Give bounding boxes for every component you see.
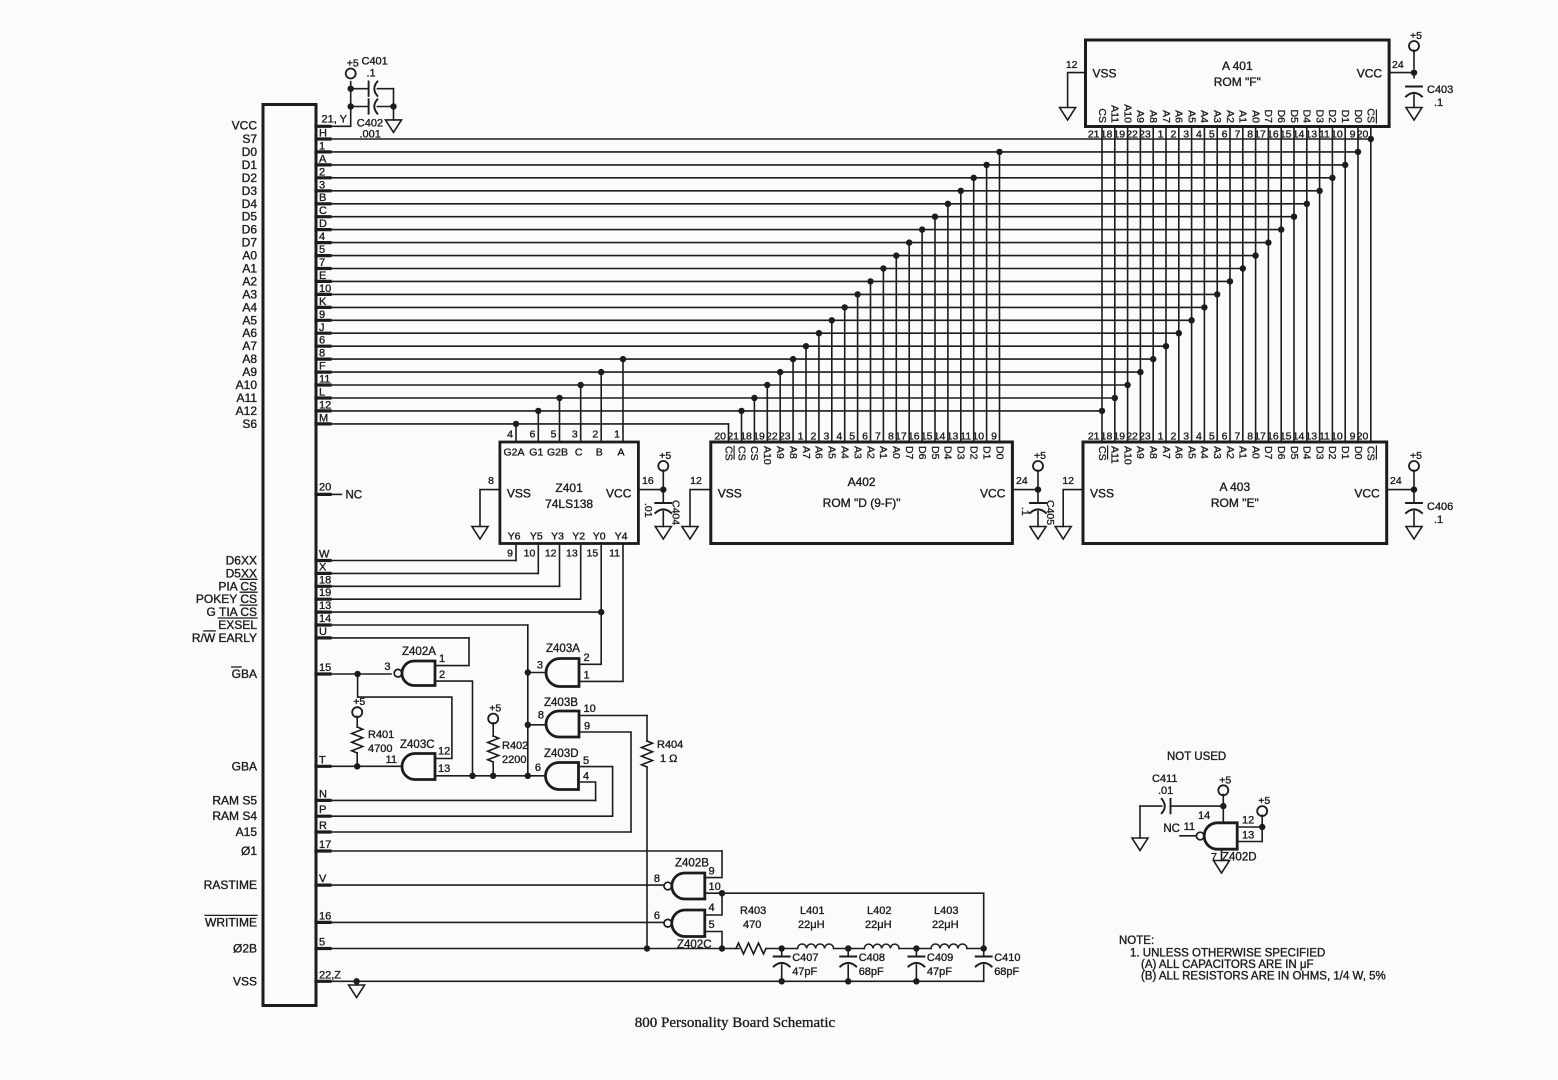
svg-text:A11: A11 [1109, 105, 1121, 123]
svg-text:D2: D2 [242, 171, 258, 185]
svg-text:A8: A8 [787, 446, 799, 459]
svg-text:2200: 2200 [502, 754, 526, 766]
svg-text:CS: CS [1365, 108, 1377, 123]
svg-text:+5: +5 [489, 703, 501, 715]
svg-text:Y3: Y3 [551, 531, 564, 543]
svg-text:D2: D2 [1326, 110, 1338, 124]
svg-text:R: R [319, 820, 327, 832]
svg-text:15: 15 [921, 431, 933, 443]
svg-text:19: 19 [1113, 431, 1125, 443]
svg-text:G2A: G2A [503, 447, 524, 459]
svg-text:68pF: 68pF [859, 966, 884, 978]
svg-text:A6: A6 [242, 326, 257, 340]
svg-text:5: 5 [1209, 129, 1215, 141]
svg-text:+5: +5 [353, 696, 365, 708]
svg-text:10: 10 [709, 881, 721, 893]
svg-text:ROM "F": ROM "F" [1214, 75, 1261, 89]
svg-text:D7: D7 [1262, 446, 1274, 460]
svg-text:A: A [617, 447, 624, 459]
svg-text:Z403B: Z403B [544, 697, 578, 709]
svg-text:A3: A3 [1211, 446, 1223, 459]
svg-text:A10: A10 [761, 446, 773, 465]
svg-text:12: 12 [1066, 59, 1078, 71]
svg-text:A8: A8 [242, 352, 257, 366]
svg-text:6: 6 [862, 431, 868, 443]
svg-text:A12: A12 [236, 404, 258, 418]
svg-text:A1: A1 [242, 262, 257, 276]
svg-text:3: 3 [572, 429, 578, 441]
svg-text:4700: 4700 [368, 743, 392, 755]
svg-text:20: 20 [1357, 431, 1369, 443]
svg-text:5: 5 [1209, 431, 1215, 443]
svg-text:D7: D7 [903, 446, 915, 460]
svg-text:19: 19 [1113, 129, 1125, 141]
svg-text:17: 17 [319, 839, 331, 851]
svg-text:4: 4 [507, 429, 513, 441]
svg-text:(A) ALL CAPACITORS ARE IN μF: (A) ALL CAPACITORS ARE IN μF [1141, 959, 1314, 971]
svg-text:A 403: A 403 [1219, 480, 1250, 494]
svg-text:9: 9 [1350, 431, 1356, 443]
svg-text:9: 9 [991, 431, 997, 443]
svg-text:5: 5 [319, 937, 325, 949]
svg-text:VCC: VCC [980, 487, 1006, 501]
svg-text:A3: A3 [1211, 110, 1223, 123]
svg-text:C409: C409 [927, 952, 953, 964]
svg-text:12: 12 [1242, 815, 1254, 827]
svg-text:A10: A10 [1121, 104, 1133, 123]
svg-text:NOTE:: NOTE: [1119, 935, 1154, 947]
svg-text:D3: D3 [955, 446, 967, 460]
svg-text:B: B [596, 447, 603, 459]
svg-text:12: 12 [690, 475, 702, 487]
svg-text:21: 21 [727, 431, 739, 443]
svg-text:13: 13 [1305, 431, 1317, 443]
svg-text:D0: D0 [993, 446, 1005, 460]
svg-text:GBA: GBA [232, 759, 257, 773]
svg-text:D1: D1 [242, 158, 258, 172]
svg-text:20: 20 [319, 482, 331, 494]
svg-text:22: 22 [1126, 129, 1138, 141]
svg-text:U: U [319, 626, 327, 638]
svg-text:6: 6 [529, 429, 535, 441]
svg-text:Ø1: Ø1 [241, 844, 257, 858]
svg-text:A11: A11 [1109, 446, 1121, 464]
svg-text:23: 23 [779, 431, 791, 443]
svg-text:Ø2B: Ø2B [233, 942, 257, 956]
svg-text:A2: A2 [242, 274, 257, 288]
svg-text:3: 3 [384, 661, 390, 673]
svg-text:PIA CS: PIA CS [218, 579, 257, 593]
svg-text:D4: D4 [242, 197, 258, 211]
svg-text:NOT USED: NOT USED [1167, 751, 1226, 763]
svg-text:19: 19 [319, 587, 331, 599]
svg-text:14: 14 [1293, 129, 1305, 141]
svg-text:A 401: A 401 [1222, 59, 1253, 73]
svg-text:47pF: 47pF [792, 966, 817, 978]
svg-text:24: 24 [1392, 59, 1404, 71]
svg-text:11: 11 [1319, 129, 1330, 141]
svg-text:VSS: VSS [1093, 67, 1117, 81]
svg-text:1: 1 [1158, 129, 1164, 141]
svg-text:7: 7 [1234, 129, 1240, 141]
svg-text:D3: D3 [1313, 446, 1325, 460]
svg-text:17: 17 [1254, 129, 1266, 141]
svg-text:A15: A15 [236, 825, 258, 839]
svg-text:A0: A0 [242, 249, 257, 263]
svg-text:N: N [319, 788, 327, 800]
svg-text:D0: D0 [242, 145, 258, 159]
svg-text:Y2: Y2 [572, 531, 585, 543]
svg-text:P: P [319, 804, 326, 816]
svg-text:Z402B: Z402B [675, 858, 709, 870]
svg-text:22μH: 22μH [932, 919, 959, 931]
svg-text:13: 13 [566, 548, 578, 560]
svg-text:T: T [319, 754, 326, 766]
svg-text:D5: D5 [929, 446, 941, 460]
svg-text:POKEY CS: POKEY CS [196, 592, 257, 606]
svg-text:C411: C411 [1152, 773, 1177, 785]
svg-text:A9: A9 [1134, 446, 1146, 459]
svg-text:A5: A5 [242, 313, 257, 327]
svg-text:15: 15 [1280, 129, 1292, 141]
svg-text:C410: C410 [994, 952, 1020, 964]
svg-text:L403: L403 [934, 905, 958, 917]
svg-text:R403: R403 [740, 905, 766, 917]
svg-text:C401: C401 [362, 56, 388, 68]
svg-text:23: 23 [1139, 431, 1151, 443]
svg-text:15: 15 [1280, 431, 1292, 443]
svg-text:8: 8 [488, 475, 494, 487]
svg-text:11: 11 [1184, 821, 1195, 833]
svg-text:22μH: 22μH [798, 919, 825, 931]
svg-text:A9: A9 [242, 365, 257, 379]
svg-text:CS: CS [735, 446, 747, 461]
svg-text:11: 11 [1319, 431, 1330, 443]
svg-text:CS: CS [722, 446, 734, 461]
svg-text:24: 24 [1390, 475, 1402, 487]
svg-text:A0: A0 [1249, 110, 1261, 123]
svg-text:17: 17 [895, 431, 907, 443]
svg-text:11: 11 [960, 431, 971, 443]
svg-text:10: 10 [1331, 431, 1343, 443]
svg-text:8: 8 [1247, 431, 1253, 443]
svg-text:9: 9 [1350, 129, 1356, 141]
svg-text:3: 3 [537, 660, 543, 672]
svg-text:S6: S6 [242, 417, 257, 431]
svg-text:16: 16 [642, 475, 654, 487]
svg-text:3: 3 [1183, 129, 1189, 141]
svg-text:21: 21 [1088, 129, 1100, 141]
svg-text:16: 16 [908, 431, 920, 443]
svg-text:R402: R402 [502, 740, 528, 752]
svg-text:L401: L401 [800, 905, 824, 917]
svg-text:A9: A9 [774, 446, 786, 459]
svg-text:2: 2 [1170, 129, 1176, 141]
svg-text:11: 11 [386, 754, 397, 766]
svg-text:A0: A0 [1249, 446, 1261, 459]
svg-text:12: 12 [545, 548, 557, 560]
svg-text:Z403A: Z403A [546, 643, 580, 655]
svg-text:5: 5 [551, 429, 557, 441]
svg-text:D2: D2 [968, 446, 980, 460]
svg-text:16: 16 [1267, 129, 1279, 141]
svg-text:13: 13 [438, 763, 450, 775]
svg-text:D7: D7 [242, 236, 258, 250]
svg-text:Z403C: Z403C [400, 739, 435, 751]
svg-text:1: 1 [1158, 431, 1164, 443]
svg-text:A4: A4 [1198, 110, 1210, 123]
svg-text:4: 4 [1196, 431, 1202, 443]
svg-text:D6XX: D6XX [226, 554, 257, 568]
svg-text:D3: D3 [1313, 110, 1325, 124]
svg-text:Z402C: Z402C [677, 939, 712, 951]
svg-text:22,Z: 22,Z [319, 969, 341, 981]
svg-text:4: 4 [836, 431, 842, 443]
svg-text:A5: A5 [1185, 110, 1197, 123]
svg-text:NC: NC [346, 490, 363, 502]
svg-text:A2: A2 [1224, 110, 1236, 123]
svg-text:D1: D1 [980, 446, 992, 460]
svg-text:4: 4 [709, 902, 715, 914]
svg-text:C405: C405 [1044, 500, 1056, 525]
svg-text:G2B: G2B [547, 447, 568, 459]
svg-text:A1: A1 [877, 446, 889, 459]
svg-text:Y6: Y6 [508, 531, 521, 543]
svg-text:3: 3 [1183, 431, 1189, 443]
svg-text:A4: A4 [1198, 446, 1210, 459]
svg-text:R404: R404 [657, 739, 683, 751]
svg-text:4: 4 [583, 771, 589, 783]
svg-text:20: 20 [714, 431, 726, 443]
svg-text:VCC: VCC [606, 487, 632, 501]
svg-text:X: X [319, 561, 327, 573]
svg-text:G1: G1 [529, 447, 543, 459]
svg-text:1: 1 [614, 429, 620, 441]
svg-text:5: 5 [849, 431, 855, 443]
svg-text:1: 1 [584, 670, 590, 682]
svg-text:A8: A8 [1147, 446, 1159, 459]
svg-text:A2: A2 [1224, 446, 1236, 459]
svg-text:RASTIME: RASTIME [204, 878, 257, 892]
svg-text:22μH: 22μH [865, 919, 892, 931]
svg-text:D0: D0 [1352, 110, 1364, 124]
svg-text:13: 13 [1242, 830, 1254, 842]
svg-text:.1: .1 [1434, 514, 1443, 526]
svg-text:2: 2 [811, 431, 817, 443]
svg-text:.1: .1 [1434, 97, 1443, 109]
svg-text:Z402A: Z402A [402, 646, 436, 658]
svg-text:A3: A3 [851, 446, 863, 459]
svg-text:Z403D: Z403D [544, 748, 579, 760]
svg-text:13: 13 [319, 600, 331, 612]
svg-text:A4: A4 [242, 300, 257, 314]
svg-text:68pF: 68pF [994, 966, 1019, 978]
svg-text:.1: .1 [367, 68, 376, 80]
svg-text:16: 16 [319, 910, 331, 922]
svg-text:13: 13 [1305, 129, 1317, 141]
svg-text:+5: +5 [1258, 795, 1270, 807]
svg-text:470: 470 [743, 919, 761, 931]
svg-text:6: 6 [535, 762, 541, 774]
svg-text:6: 6 [654, 910, 660, 922]
svg-text:14: 14 [319, 613, 331, 625]
svg-text:D6: D6 [1275, 110, 1287, 124]
svg-text:VSS: VSS [507, 487, 531, 501]
svg-text:5: 5 [583, 755, 589, 767]
svg-text:21, Y: 21, Y [322, 114, 348, 126]
svg-text:VSS: VSS [718, 487, 742, 501]
svg-text:1. UNLESS OTHERWISE SPECIFIED: 1. UNLESS OTHERWISE SPECIFIED [1130, 948, 1325, 960]
svg-text:D2: D2 [1326, 446, 1338, 460]
svg-text:1 Ω: 1 Ω [660, 753, 677, 765]
svg-text:9: 9 [709, 866, 715, 878]
svg-text:W: W [319, 549, 330, 561]
svg-text:A1: A1 [1237, 110, 1249, 123]
svg-text:47pF: 47pF [927, 966, 952, 978]
svg-text:VCC: VCC [1354, 487, 1380, 501]
svg-text:10: 10 [972, 431, 984, 443]
svg-text:CS: CS [748, 446, 760, 461]
svg-text:A7: A7 [1160, 110, 1172, 123]
svg-text:22: 22 [766, 431, 778, 443]
svg-text:D1: D1 [1339, 110, 1351, 124]
svg-text:A0: A0 [890, 446, 902, 459]
svg-text:A6: A6 [813, 446, 825, 459]
svg-text:D5: D5 [1288, 446, 1300, 460]
svg-text:A7: A7 [242, 339, 257, 353]
svg-text:10: 10 [1331, 129, 1343, 141]
svg-text:A6: A6 [1173, 446, 1185, 459]
svg-text:A10: A10 [236, 378, 258, 392]
svg-text:D0: D0 [1352, 446, 1364, 460]
svg-text:G TIA CS: G TIA CS [207, 605, 257, 619]
svg-text:10: 10 [584, 703, 596, 715]
svg-text:17: 17 [1254, 431, 1266, 443]
svg-text:CS: CS [1096, 446, 1108, 461]
svg-text:D6: D6 [242, 223, 258, 237]
svg-text:A7: A7 [800, 446, 812, 459]
svg-text:D4: D4 [1301, 110, 1313, 124]
svg-text:+5: +5 [1410, 450, 1422, 462]
svg-text:+5: +5 [347, 58, 359, 70]
svg-text:+5: +5 [1219, 774, 1231, 786]
svg-text:D4: D4 [1301, 446, 1313, 460]
svg-text:S7: S7 [242, 132, 257, 146]
svg-text:3: 3 [823, 431, 829, 443]
svg-text:12: 12 [438, 746, 450, 758]
svg-text:A6: A6 [1173, 110, 1185, 123]
svg-text:A5: A5 [1185, 446, 1197, 459]
svg-text:A4: A4 [839, 446, 851, 459]
svg-text:A11: A11 [237, 391, 258, 405]
svg-text:13: 13 [947, 431, 959, 443]
svg-text:A8: A8 [1147, 110, 1159, 123]
svg-text:800 Personality Board Schemati: 800 Personality Board Schematic [635, 1015, 836, 1031]
svg-text:9: 9 [584, 721, 590, 733]
svg-text:23: 23 [1139, 129, 1151, 141]
svg-text:Y5: Y5 [530, 531, 543, 543]
svg-text:15: 15 [587, 548, 599, 560]
svg-text:RAM S4: RAM S4 [212, 809, 257, 823]
svg-text:18: 18 [740, 431, 752, 443]
svg-text:ROM "D (9-F)": ROM "D (9-F)" [823, 496, 901, 510]
svg-text:8: 8 [538, 710, 544, 722]
svg-text:8: 8 [654, 873, 660, 885]
svg-text:8: 8 [888, 431, 894, 443]
svg-text:14: 14 [934, 431, 946, 443]
svg-text:18: 18 [1101, 431, 1113, 443]
svg-text:5: 5 [709, 919, 715, 931]
svg-text:RAM S5: RAM S5 [212, 793, 257, 807]
svg-text:D3: D3 [242, 184, 258, 198]
svg-text:VSS: VSS [1090, 487, 1114, 501]
svg-text:2: 2 [1170, 431, 1176, 443]
svg-text:ROM "E": ROM "E" [1211, 496, 1259, 510]
svg-text:9: 9 [507, 548, 513, 560]
svg-text:7: 7 [875, 431, 881, 443]
svg-text:A3: A3 [242, 287, 257, 301]
svg-text:2: 2 [439, 669, 445, 681]
svg-text:Y0: Y0 [593, 531, 606, 543]
svg-text:15: 15 [319, 662, 331, 674]
svg-text:GBA: GBA [232, 667, 257, 681]
svg-text:2: 2 [584, 652, 590, 664]
svg-text:EXSEL: EXSEL [218, 618, 257, 632]
svg-text:11: 11 [609, 548, 620, 560]
svg-text:20: 20 [1357, 129, 1369, 141]
svg-text:D6: D6 [916, 446, 928, 460]
svg-text:6: 6 [1222, 431, 1228, 443]
svg-text:VSS: VSS [233, 974, 257, 988]
svg-text:8: 8 [1247, 129, 1253, 141]
svg-text:.01: .01 [1158, 785, 1173, 797]
svg-text:+5: +5 [659, 450, 671, 462]
svg-text:6: 6 [1222, 129, 1228, 141]
svg-text:+5: +5 [1034, 450, 1046, 462]
svg-text:14: 14 [1293, 431, 1305, 443]
svg-text:A5: A5 [826, 446, 838, 459]
svg-text:A7: A7 [1160, 446, 1172, 459]
svg-text:R401: R401 [368, 729, 394, 741]
svg-text:C: C [575, 447, 583, 459]
svg-text:Y4: Y4 [615, 531, 628, 543]
svg-text:74LS138: 74LS138 [545, 497, 593, 511]
svg-text:1: 1 [798, 431, 804, 443]
svg-text:24: 24 [1016, 475, 1028, 487]
svg-text:D5: D5 [242, 210, 258, 224]
svg-text:18: 18 [1101, 129, 1113, 141]
svg-text:2: 2 [592, 429, 598, 441]
svg-text:VCC: VCC [1357, 67, 1383, 81]
svg-text:Z401: Z401 [555, 481, 583, 495]
svg-text:D4: D4 [942, 446, 954, 460]
svg-text:R/W EARLY: R/W EARLY [192, 631, 257, 645]
svg-text:18: 18 [319, 574, 331, 586]
svg-text:.1: .1 [1019, 507, 1031, 516]
svg-text:A2: A2 [864, 446, 876, 459]
svg-text:L402: L402 [867, 905, 891, 917]
svg-text:D1: D1 [1339, 446, 1351, 460]
svg-text:A1: A1 [1237, 446, 1249, 459]
svg-text:.01: .01 [642, 503, 654, 518]
svg-text:C406: C406 [1427, 501, 1453, 513]
svg-text:1: 1 [439, 653, 445, 665]
svg-text:A402: A402 [848, 475, 876, 489]
svg-text:19: 19 [753, 431, 765, 443]
svg-text:21: 21 [1088, 431, 1100, 443]
svg-text:CS: CS [1365, 446, 1377, 461]
svg-text:WRITIME: WRITIME [205, 915, 257, 929]
